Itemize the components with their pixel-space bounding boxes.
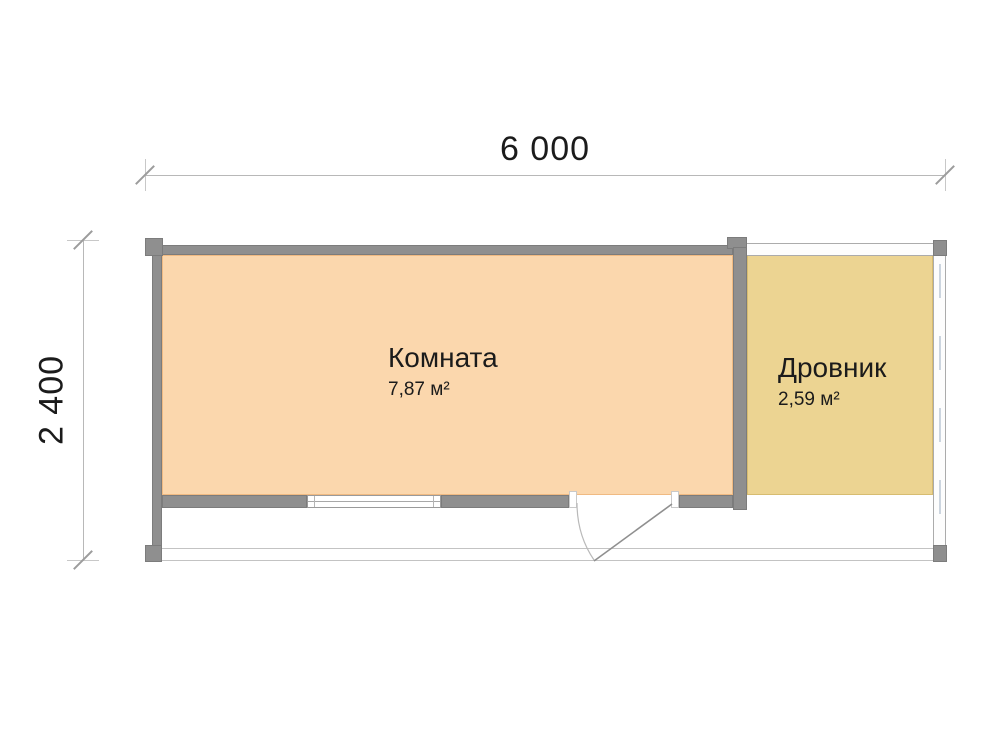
porch-line-upper bbox=[162, 548, 933, 549]
shed-wall-right bbox=[933, 256, 946, 545]
dim-line-horizontal bbox=[145, 175, 945, 176]
dim-line-vertical bbox=[83, 240, 84, 560]
wall-bottom-seg1 bbox=[162, 495, 307, 508]
wall-interior bbox=[733, 247, 747, 510]
wall-bottom-seg3 bbox=[679, 495, 733, 508]
room-komnata-name: Комната bbox=[388, 343, 498, 372]
room-komnata-label: Комната 7,87 м² bbox=[388, 343, 498, 401]
shed-post-bottom-right bbox=[933, 545, 947, 562]
wall-left-foot bbox=[145, 545, 162, 562]
wall-left bbox=[152, 245, 162, 562]
room-komnata-area: 7,87 м² bbox=[388, 379, 498, 401]
room-drovnik-name: Дровник bbox=[778, 353, 886, 382]
room-drovnik-label: Дровник 2,59 м² bbox=[778, 353, 886, 411]
corner-post-top-left bbox=[145, 238, 163, 256]
wall-bottom-seg2 bbox=[441, 495, 569, 508]
room-drovnik-area: 2,59 м² bbox=[778, 389, 886, 411]
window-bottom bbox=[307, 495, 441, 508]
window-tick-right bbox=[433, 496, 434, 507]
shed-wall-top bbox=[747, 243, 933, 256]
porch-line-lower bbox=[162, 560, 933, 561]
door-arc bbox=[577, 503, 594, 560]
door-leaf bbox=[594, 504, 672, 561]
wall-top bbox=[152, 245, 733, 255]
door-jamb-left bbox=[569, 491, 577, 508]
window-tick-left bbox=[314, 496, 315, 507]
dim-label-width: 6 000 bbox=[145, 130, 945, 169]
dim-label-height: 2 400 bbox=[33, 355, 72, 445]
door-jamb-right bbox=[671, 491, 679, 508]
shed-post-top-right bbox=[933, 240, 947, 256]
shed-wall-right-dashes bbox=[939, 264, 941, 536]
floor-plan: 6 000 2 400 Комната 7,87 м² bbox=[0, 0, 1000, 750]
window-glass-line bbox=[308, 501, 440, 502]
